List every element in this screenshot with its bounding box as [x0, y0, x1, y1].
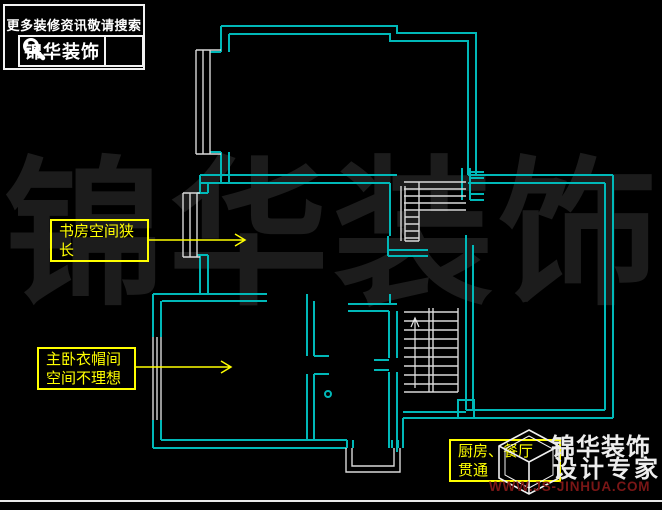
stair-up-arrow — [411, 318, 419, 388]
search-banner-inner-box: 锦华装饰 — [18, 35, 144, 67]
annotation-wardrobe: 主卧衣帽间 空间不理想 — [37, 347, 136, 390]
wardrobe-annotation-arrow — [135, 361, 231, 373]
annotation-study: 书房空间狭 长 — [50, 219, 149, 262]
annotation-study-line2: 长 — [59, 241, 147, 260]
search-banner: 更多装修资讯敬请搜索 锦华装饰 — [3, 4, 145, 70]
annotation-wardrobe-line2: 空间不理想 — [46, 369, 134, 388]
cad-floorplan-screenshot: 锦 华 装 饰 — [0, 0, 662, 510]
annotation-wardrobe-line1: 主卧衣帽间 — [46, 350, 134, 369]
footer-website-url: WWW.JS-JINHUA.COM — [489, 479, 650, 494]
annotation-study-line1: 书房空间狭 — [59, 222, 147, 241]
search-banner-tagline: 更多装修资讯敬请搜索 — [5, 15, 143, 34]
wall-lines — [153, 26, 613, 452]
magnifier-icon — [106, 37, 142, 65]
bottom-border-line — [0, 500, 662, 502]
